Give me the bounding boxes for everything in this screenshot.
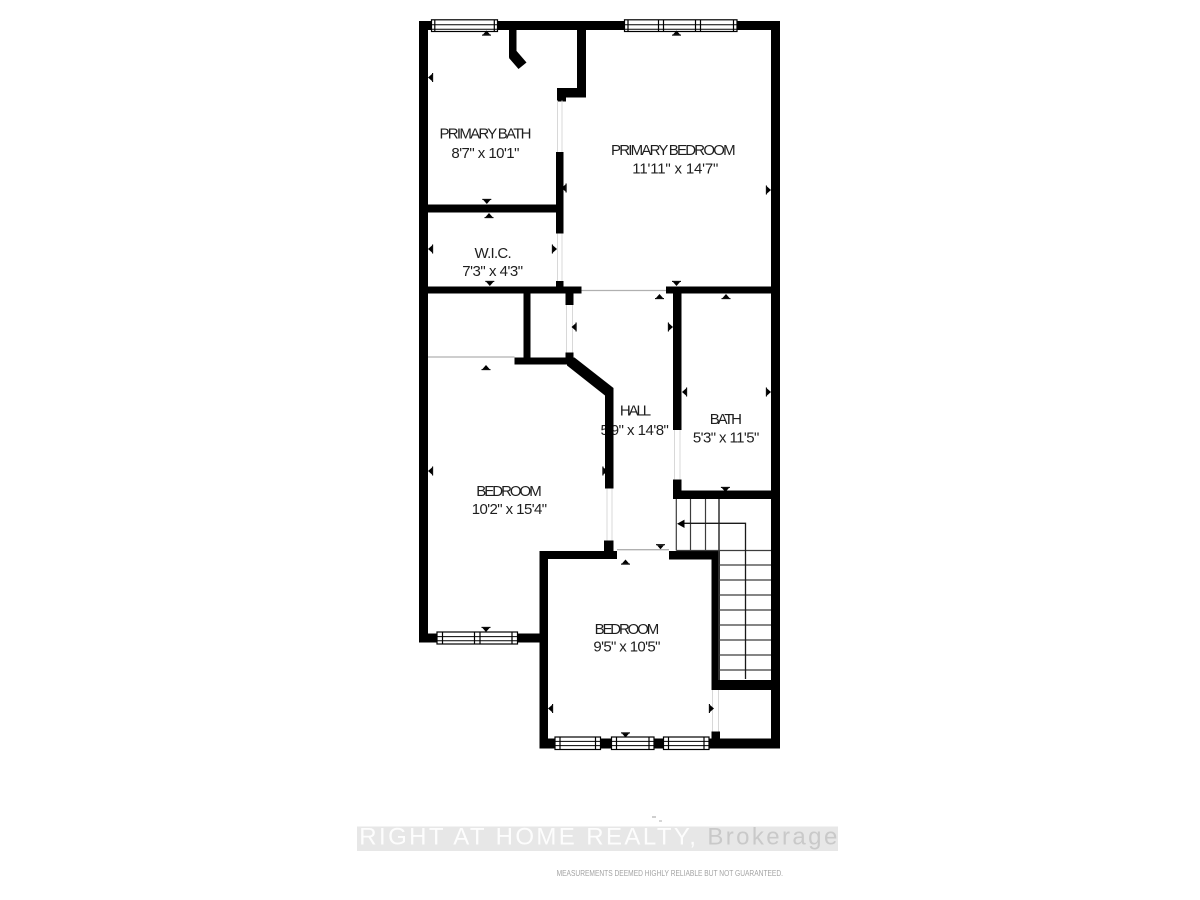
svg-text:RIGHT AT HOME REALTY, Brokerag: RIGHT AT HOME REALTY, Brokerage [359, 823, 837, 850]
svg-text:BATH: BATH [710, 411, 742, 428]
svg-text:11'11" x 14'7": 11'11" x 14'7" [632, 161, 718, 178]
svg-text:BEDROOM: BEDROOM [476, 483, 541, 500]
svg-text:10'2" x 15'4": 10'2" x 15'4" [472, 501, 547, 518]
svg-text:5'3" x 11'5": 5'3" x 11'5" [693, 430, 759, 447]
svg-text:W.I.C.: W.I.C. [475, 245, 512, 262]
svg-text:MEASUREMENTS DEEMED HIGHLY REL: MEASUREMENTS DEEMED HIGHLY RELIABLE BUT … [557, 869, 783, 878]
svg-text:8'7" x 10'1": 8'7" x 10'1" [451, 145, 519, 162]
svg-text:PRIMARY BEDROOM: PRIMARY BEDROOM [611, 142, 736, 159]
svg-text:7'3" x 4'3": 7'3" x 4'3" [462, 263, 523, 280]
svg-text:HALL: HALL [620, 403, 651, 420]
svg-text:BEDROOM: BEDROOM [595, 621, 660, 638]
svg-text:PRIMARY BATH: PRIMARY BATH [440, 126, 532, 143]
svg-text:9'5" x 10'5": 9'5" x 10'5" [593, 639, 660, 656]
